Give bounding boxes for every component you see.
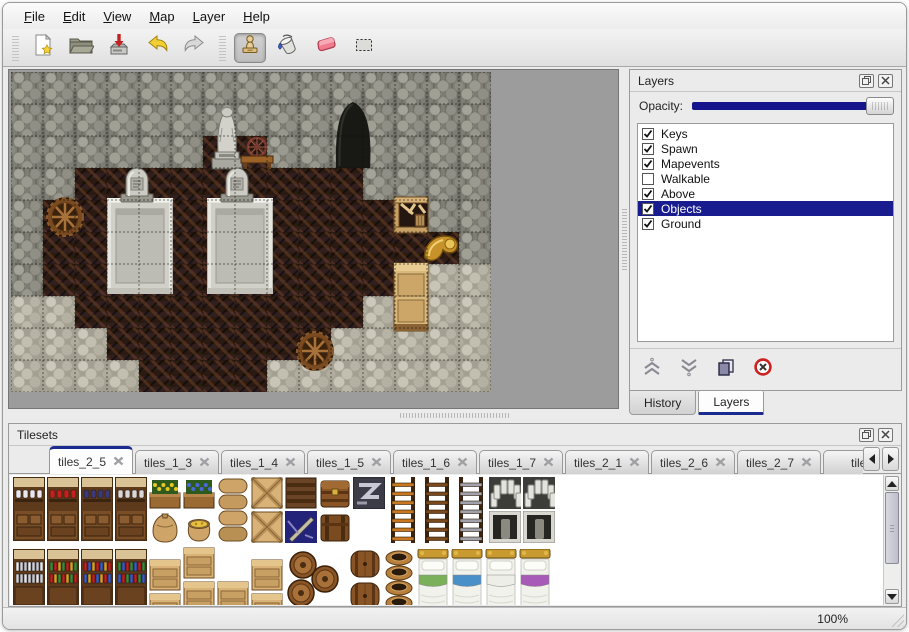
tile-palette[interactable]: [12, 477, 882, 605]
map-tile[interactable]: [171, 296, 203, 328]
layer-visibility-checkbox[interactable]: [642, 128, 654, 140]
map-tile[interactable]: [299, 200, 331, 232]
tileset-tab-label: tiles_1_3: [144, 456, 192, 470]
map-tile[interactable]: [331, 360, 363, 392]
tile-plant[interactable]: [149, 477, 181, 514]
map-tile[interactable]: [171, 104, 203, 136]
tile-sackpile[interactable]: [217, 477, 249, 548]
map-tile[interactable]: [427, 72, 459, 104]
map-tile[interactable]: [139, 328, 171, 360]
tile-ladder[interactable]: [387, 477, 419, 548]
tile-crate[interactable]: [183, 581, 215, 605]
tile-shelf[interactable]: [115, 477, 147, 546]
layer-visibility-checkbox[interactable]: [642, 173, 654, 185]
tile-shelfbooks[interactable]: [115, 549, 147, 605]
map-tile[interactable]: [363, 264, 395, 296]
map-tile[interactable]: [459, 264, 491, 296]
tileset-tab-tiles_2_5[interactable]: tiles_2_5: [49, 446, 133, 474]
resize-grip[interactable]: [887, 610, 904, 627]
layer-row-keys[interactable]: Keys: [638, 126, 893, 141]
map-tile[interactable]: [11, 264, 43, 296]
map-tile[interactable]: [363, 232, 395, 264]
map-tile[interactable]: [43, 72, 75, 104]
palette-scrollbar[interactable]: [883, 475, 900, 605]
map-tile[interactable]: [43, 328, 75, 360]
tab-history[interactable]: History: [629, 391, 696, 415]
splitter-grip: [400, 413, 510, 418]
map-tile[interactable]: [171, 360, 203, 392]
map-tile[interactable]: [75, 264, 107, 296]
layers-panel-title: Layers: [638, 74, 674, 88]
map-tile[interactable]: [363, 200, 395, 232]
open-button[interactable]: [65, 33, 97, 63]
tile-shelfbooks[interactable]: [13, 549, 45, 605]
map-tile[interactable]: [235, 328, 267, 360]
map-tile[interactable]: [11, 232, 43, 264]
map-tile[interactable]: [75, 360, 107, 392]
tileset-tab-label: tiles_1_6: [402, 456, 450, 470]
map-tile[interactable]: [43, 264, 75, 296]
map-tile[interactable]: [11, 296, 43, 328]
map-tile[interactable]: [459, 168, 491, 200]
layer-row-above[interactable]: Above: [638, 186, 893, 201]
layer-label: Keys: [661, 127, 688, 141]
tile-cratenavy[interactable]: [285, 511, 317, 548]
opacity-label: Opacity:: [639, 99, 683, 113]
toolbar-grip[interactable]: [12, 35, 19, 61]
wooden-cabinet-sprite: [393, 262, 429, 337]
layer-row-objects[interactable]: Objects: [638, 201, 893, 216]
map-tile[interactable]: [459, 72, 491, 104]
tile-bed[interactable]: [451, 549, 483, 605]
map-tile[interactable]: [299, 264, 331, 296]
map-tile[interactable]: [331, 328, 363, 360]
tile-chestband[interactable]: [319, 511, 351, 548]
tileset-tab-tiles_2_6[interactable]: tiles_2_6: [651, 450, 735, 474]
gravestone-sprite: [217, 164, 257, 209]
map-tile[interactable]: [427, 360, 459, 392]
zoom-level: 100%: [817, 612, 848, 626]
layer-row-mapevents[interactable]: Mapevents: [638, 156, 893, 171]
tab-close-icon[interactable]: [199, 456, 210, 470]
tile-sackopen[interactable]: [183, 511, 215, 548]
map-tile[interactable]: [171, 264, 203, 296]
map-tile[interactable]: [11, 328, 43, 360]
map-tile[interactable]: [363, 296, 395, 328]
map-tile[interactable]: [171, 136, 203, 168]
barrel-sprite: [45, 196, 85, 243]
duplicate-layer-button[interactable]: [714, 359, 738, 381]
map-tile[interactable]: [75, 328, 107, 360]
map-tile[interactable]: [203, 360, 235, 392]
tile-shelfbooks[interactable]: [47, 549, 79, 605]
map-tile[interactable]: [75, 136, 107, 168]
layer-label: Spawn: [661, 142, 698, 156]
layer-actions: [630, 348, 901, 390]
opacity-slider[interactable]: [692, 102, 892, 110]
stamp-icon: [238, 33, 262, 62]
map-tile[interactable]: [299, 232, 331, 264]
map-tile[interactable]: [459, 328, 491, 360]
toolbar-grip[interactable]: [219, 35, 226, 61]
map-tile[interactable]: [427, 296, 459, 328]
layer-row-ground[interactable]: Ground: [638, 216, 893, 231]
tileset-tabs: tiles_2_5tiles_1_3tiles_1_4tiles_1_5tile…: [49, 445, 863, 474]
map-tile[interactable]: [235, 360, 267, 392]
tileset-tab-tiles_1_4[interactable]: tiles_1_4: [221, 450, 305, 474]
layer-label: Mapevents: [661, 157, 720, 171]
map-tile[interactable]: [43, 296, 75, 328]
map-tile[interactable]: [107, 296, 139, 328]
fill-icon: [275, 33, 301, 62]
map-tile[interactable]: [267, 72, 299, 104]
arrow-up-icon: [887, 480, 897, 488]
tile-barrel[interactable]: [349, 581, 381, 605]
map-tile[interactable]: [43, 360, 75, 392]
tile-crate[interactable]: [149, 559, 181, 596]
stamp-tool-button[interactable]: [234, 33, 266, 63]
opacity-row: Opacity:: [630, 92, 901, 118]
layer-visibility-checkbox[interactable]: [642, 158, 654, 170]
menu-bar: FileEditViewMapLayerHelp: [3, 3, 906, 29]
tileset-tab-label: tiles_1_5: [316, 456, 364, 470]
map-tile[interactable]: [43, 136, 75, 168]
map-tile[interactable]: [139, 72, 171, 104]
tile-barrelcluster[interactable]: [283, 551, 343, 605]
map-tile[interactable]: [43, 104, 75, 136]
map-tile[interactable]: [331, 200, 363, 232]
tile-crate[interactable]: [251, 559, 283, 596]
scroll-down-button[interactable]: [885, 589, 899, 604]
map-tile[interactable]: [11, 136, 43, 168]
new-file-button[interactable]: [27, 33, 59, 63]
layer-label: Ground: [661, 217, 701, 231]
splitter-grip: [622, 208, 627, 270]
tile-chest[interactable]: [319, 477, 351, 514]
move-layer-up-button[interactable]: [640, 359, 664, 381]
map-tile[interactable]: [427, 328, 459, 360]
open-icon: [68, 33, 94, 62]
map-tile[interactable]: [107, 72, 139, 104]
tile-crate[interactable]: [149, 593, 181, 605]
map-tile[interactable]: [139, 104, 171, 136]
map-tile[interactable]: [299, 296, 331, 328]
tileset-tab-tiles_2_1[interactable]: tiles_2_1: [565, 450, 649, 474]
tile-potstack[interactable]: [383, 549, 415, 605]
arrow-right-icon: [887, 454, 895, 464]
tile-shelf[interactable]: [81, 477, 113, 546]
vertical-splitter[interactable]: [621, 69, 627, 409]
layers-panel-titlebar: Layers: [630, 70, 901, 92]
tile-cratex[interactable]: [251, 477, 283, 514]
tab-close-icon[interactable]: [543, 456, 554, 470]
scroll-up-button[interactable]: [885, 476, 899, 491]
layer-visibility-checkbox[interactable]: [642, 188, 654, 200]
map-tile[interactable]: [171, 72, 203, 104]
delete-layer-button[interactable]: [751, 359, 775, 381]
duplicate-icon: [716, 357, 736, 382]
map-tile[interactable]: [203, 328, 235, 360]
undo-icon: [144, 33, 170, 62]
save-button[interactable]: [103, 33, 135, 63]
panel-tab-bar: HistoryLayers: [629, 391, 766, 417]
tile-bed[interactable]: [485, 549, 517, 605]
layer-list[interactable]: KeysSpawnMapeventsWalkableAboveObjectsGr…: [637, 123, 894, 342]
tile-cratez[interactable]: [353, 477, 385, 514]
map-tile[interactable]: [171, 328, 203, 360]
status-bar: 100%: [3, 607, 906, 629]
tileset-tab-bar: tiles_2_5tiles_1_3tiles_1_4tiles_1_5tile…: [9, 446, 901, 474]
tileset-tab-label: tiles_1_7: [488, 456, 536, 470]
tab-close-icon[interactable]: [113, 455, 124, 469]
map-tile[interactable]: [363, 328, 395, 360]
map-tile[interactable]: [395, 72, 427, 104]
menu-edit[interactable]: Edit: [54, 6, 94, 27]
map-tile[interactable]: [395, 360, 427, 392]
tab-close-icon[interactable]: [371, 456, 382, 470]
map-tile[interactable]: [203, 296, 235, 328]
tileset-tab-label: tiles_1_4: [230, 456, 278, 470]
map-tile[interactable]: [107, 104, 139, 136]
map-tile[interactable]: [427, 104, 459, 136]
tile-crate[interactable]: [251, 593, 283, 605]
tile-shelf[interactable]: [13, 477, 45, 546]
layer-label: Objects: [661, 202, 702, 216]
map-tile[interactable]: [459, 104, 491, 136]
map-tile[interactable]: [363, 360, 395, 392]
map-tile[interactable]: [11, 104, 43, 136]
tile-plant[interactable]: [183, 477, 215, 514]
new-file-icon: [31, 33, 55, 62]
map-tile[interactable]: [11, 168, 43, 200]
map-tile[interactable]: [171, 168, 203, 200]
toolbar: [3, 29, 906, 67]
close-panel-button[interactable]: [878, 428, 893, 442]
select-icon: [352, 33, 376, 62]
tab-scroll-buttons: [863, 447, 899, 471]
layer-row-spawn[interactable]: Spawn: [638, 141, 893, 156]
map-tile[interactable]: [235, 296, 267, 328]
tab-layers[interactable]: Layers: [698, 391, 764, 415]
tileset-tab-tiles[interactable]: tiles_: [823, 450, 863, 474]
menu-help[interactable]: Help: [234, 6, 279, 27]
map-tile[interactable]: [139, 296, 171, 328]
tileset-tab-tiles_1_6[interactable]: tiles_1_6: [393, 450, 477, 474]
tile-doorway[interactable]: [523, 511, 555, 548]
tile-doorway[interactable]: [489, 511, 521, 548]
tileset-tab-label: tiles_2_6: [660, 456, 708, 470]
menu-layer[interactable]: Layer: [184, 6, 235, 27]
eraser-tool-button[interactable]: [310, 33, 342, 63]
tileset-tab-label: tiles_2_7: [746, 456, 794, 470]
tile-barrel[interactable]: [349, 549, 381, 584]
chevrons-down-icon: [678, 357, 700, 382]
undo-button[interactable]: [141, 33, 173, 63]
menu-view[interactable]: View: [94, 6, 140, 27]
tileset-tab-label: tiles_2_5: [58, 455, 106, 469]
tilesets-panel: Tilesets tiles_2_5tiles_1_3tiles_1_4tile…: [8, 423, 902, 607]
tab-close-icon[interactable]: [629, 456, 640, 470]
map-tile[interactable]: [395, 104, 427, 136]
delete-icon: [753, 357, 773, 382]
chevrons-up-icon: [641, 357, 663, 382]
tileset-tab-tiles_2_7[interactable]: tiles_2_7: [737, 450, 821, 474]
menu-map[interactable]: Map: [140, 6, 183, 27]
float-panel-button[interactable]: [859, 74, 874, 88]
map-tile[interactable]: [267, 104, 299, 136]
layers-panel: Layers Opacity: KeysSpawnMapeventsWalkab…: [629, 69, 904, 417]
layer-visibility-checkbox[interactable]: [642, 218, 654, 230]
map-tile[interactable]: [171, 200, 203, 232]
map-tile[interactable]: [395, 136, 427, 168]
tile-ladder[interactable]: [421, 477, 453, 548]
tileset-tab-label: tiles_2_1: [574, 456, 622, 470]
tab-close-icon[interactable]: [285, 456, 296, 470]
app-window: FileEditViewMapLayerHelp Layers Opacity:…: [2, 2, 907, 630]
scroll-tabs-right-button[interactable]: [882, 447, 899, 471]
tile-shelfbooks[interactable]: [81, 549, 113, 605]
map-tile[interactable]: [107, 328, 139, 360]
redo-icon: [182, 33, 208, 62]
map-tile[interactable]: [459, 296, 491, 328]
tile-crate[interactable]: [217, 581, 249, 605]
tile-crate[interactable]: [183, 547, 215, 584]
tileset-tab-label: tiles_: [851, 456, 863, 470]
map-tile[interactable]: [459, 136, 491, 168]
layer-visibility-checkbox[interactable]: [642, 203, 654, 215]
cave-opening-sprite: [327, 100, 379, 173]
scrollbar-thumb[interactable]: [885, 492, 899, 564]
tilesets-panel-title: Tilesets: [17, 428, 58, 442]
barrel-sprite: [295, 330, 335, 377]
map-tile[interactable]: [75, 72, 107, 104]
tile-palette-area: [10, 475, 900, 605]
layer-row-walkable[interactable]: Walkable: [638, 171, 893, 186]
opacity-slider-handle[interactable]: [866, 97, 894, 115]
tileset-tab-tiles_1_5[interactable]: tiles_1_5: [307, 450, 391, 474]
eraser-icon: [313, 33, 339, 62]
tile-archtop[interactable]: [489, 477, 521, 514]
layer-label: Walkable: [661, 172, 710, 186]
tile-cratex[interactable]: [251, 511, 283, 548]
menu-file[interactable]: File: [15, 6, 54, 27]
map-tile[interactable]: [331, 232, 363, 264]
map-tile[interactable]: [427, 168, 459, 200]
map-tile[interactable]: [139, 360, 171, 392]
stone-dais-sprite: [207, 198, 273, 299]
close-panel-button[interactable]: [878, 74, 893, 88]
map-tile[interactable]: [459, 200, 491, 232]
float-panel-button[interactable]: [859, 428, 874, 442]
map-canvas[interactable]: [8, 69, 619, 409]
move-layer-down-button[interactable]: [677, 359, 701, 381]
layers-panel-box: Layers Opacity: KeysSpawnMapeventsWalkab…: [629, 69, 902, 391]
map-tile[interactable]: [459, 360, 491, 392]
map-tile[interactable]: [11, 360, 43, 392]
tile-bed[interactable]: [519, 549, 551, 605]
tile-sackbig[interactable]: [149, 511, 181, 548]
map-tile[interactable]: [331, 296, 363, 328]
tile-shelf[interactable]: [47, 477, 79, 546]
tileset-tab-tiles_1_7[interactable]: tiles_1_7: [479, 450, 563, 474]
select-tool-button[interactable]: [348, 33, 380, 63]
fill-tool-button[interactable]: [272, 33, 304, 63]
tile-bed[interactable]: [417, 549, 449, 605]
map-tile[interactable]: [267, 296, 299, 328]
tab-close-icon[interactable]: [457, 456, 468, 470]
map-tile[interactable]: [75, 296, 107, 328]
tab-close-icon[interactable]: [801, 456, 812, 470]
gravestone-sprite: [117, 164, 157, 209]
tile-archtop[interactable]: [523, 477, 555, 514]
save-icon: [107, 33, 131, 62]
scroll-tabs-left-button[interactable]: [863, 447, 880, 471]
map-content[interactable]: [11, 72, 491, 392]
map-tile[interactable]: [11, 72, 43, 104]
map-tile[interactable]: [75, 104, 107, 136]
map-tile[interactable]: [11, 200, 43, 232]
map-tile[interactable]: [331, 264, 363, 296]
map-tile[interactable]: [171, 232, 203, 264]
tab-close-icon[interactable]: [715, 456, 726, 470]
layer-visibility-checkbox[interactable]: [642, 143, 654, 155]
tile-ladder[interactable]: [455, 477, 487, 548]
map-tile[interactable]: [427, 136, 459, 168]
arrow-left-icon: [868, 454, 876, 464]
layer-label: Above: [661, 187, 695, 201]
tile-cratedark[interactable]: [285, 477, 317, 514]
map-tile[interactable]: [107, 360, 139, 392]
tilesets-panel-titlebar: Tilesets: [9, 424, 901, 446]
redo-button[interactable]: [179, 33, 211, 63]
map-tile[interactable]: [459, 232, 491, 264]
arrow-down-icon: [887, 593, 897, 601]
tileset-tab-tiles_1_3[interactable]: tiles_1_3: [135, 450, 219, 474]
stone-dais-sprite: [107, 198, 173, 299]
